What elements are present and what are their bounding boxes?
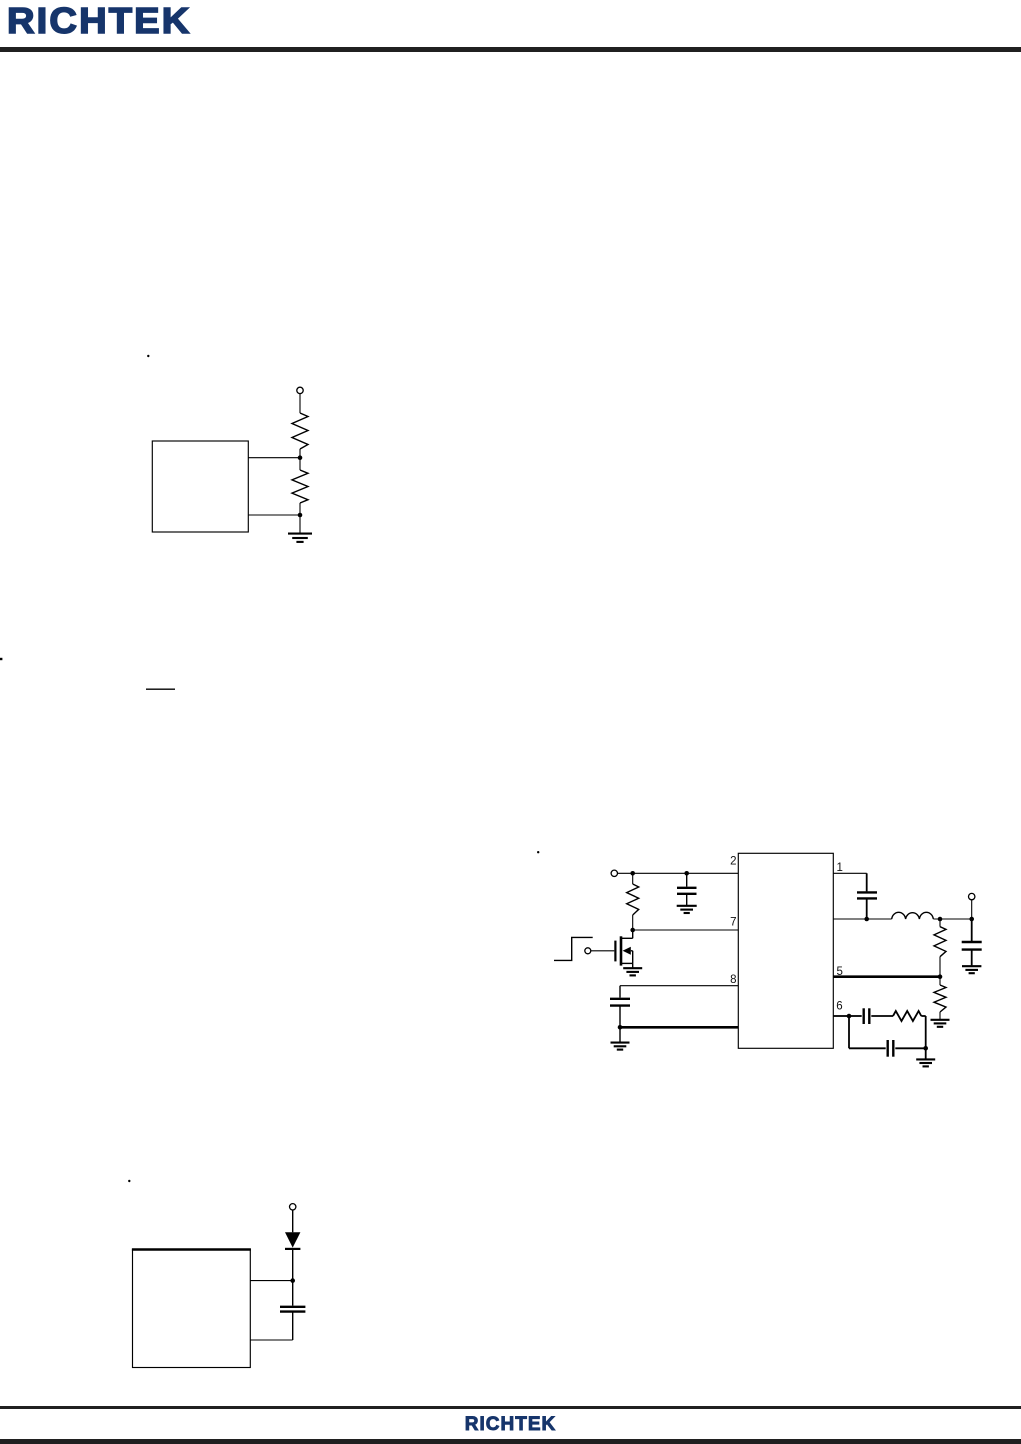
- pin-label-7: 7: [730, 917, 736, 929]
- ground-icon: [931, 1020, 950, 1027]
- capacitor: [280, 1307, 305, 1340]
- stray-dot: [537, 851, 539, 853]
- ground-icon: [623, 968, 642, 975]
- terminal-circle: [290, 1204, 296, 1210]
- feedback-resistor-top: [934, 919, 946, 977]
- stray-dot: [128, 1180, 130, 1182]
- mosfet-icon: [585, 930, 633, 968]
- junction-dot: [298, 513, 303, 518]
- body-arrow: [623, 947, 631, 955]
- input-capacitor: [677, 873, 697, 905]
- circuit-diode-capacitor: [132, 1204, 306, 1368]
- resistor: [292, 470, 308, 503]
- pullup-resistor: [627, 873, 639, 930]
- diode-icon: [285, 1232, 300, 1249]
- stray-marks: [0, 355, 539, 1182]
- circuit-resistor-divider: [152, 387, 312, 542]
- circuit-artwork: 2 7 8 1 5 6: [0, 0, 1021, 1444]
- ic-block: [738, 853, 833, 1048]
- circuit-typical-application: 2 7 8 1 5 6: [554, 853, 982, 1066]
- footer-richtek-logo: RICHTEK: [0, 1414, 1021, 1436]
- bootstrap-capacitor: [857, 873, 877, 919]
- left-margin-mark: [0, 658, 2, 660]
- feedback-resistor-bottom: [934, 977, 946, 1019]
- ic-block: [152, 441, 248, 532]
- stray-dot: [147, 355, 149, 357]
- ground-icon: [962, 966, 981, 973]
- junction-dot: [290, 1278, 295, 1283]
- output-capacitor: [962, 919, 982, 965]
- soft-start-capacitor: [610, 986, 630, 1028]
- ground-icon: [916, 1048, 935, 1066]
- junction-dot: [298, 455, 303, 460]
- ground-icon: [677, 906, 697, 913]
- footer-rule: [0, 1406, 1021, 1409]
- pin-label-1: 1: [837, 862, 843, 874]
- pin-label-8: 8: [730, 974, 736, 986]
- gate-terminal-circle: [585, 948, 591, 954]
- ground-icon: [288, 534, 312, 542]
- pin-label-2: 2: [730, 856, 736, 868]
- comp-resistor: [893, 1011, 921, 1021]
- terminal-circle: [297, 387, 303, 393]
- ground-icon: [611, 1027, 630, 1049]
- pin-label-6: 6: [836, 1001, 842, 1013]
- input-terminal-circle: [611, 870, 617, 876]
- comp-parallel-branch: [849, 1016, 926, 1057]
- output-terminal-circle: [969, 893, 975, 899]
- ic-block: [133, 1250, 251, 1368]
- footer-bar: [0, 1439, 1021, 1444]
- junction-dot: [864, 917, 869, 922]
- inductor: [892, 912, 934, 919]
- datasheet-page: RICHTEK: [0, 0, 1021, 1444]
- resistor: [292, 413, 308, 449]
